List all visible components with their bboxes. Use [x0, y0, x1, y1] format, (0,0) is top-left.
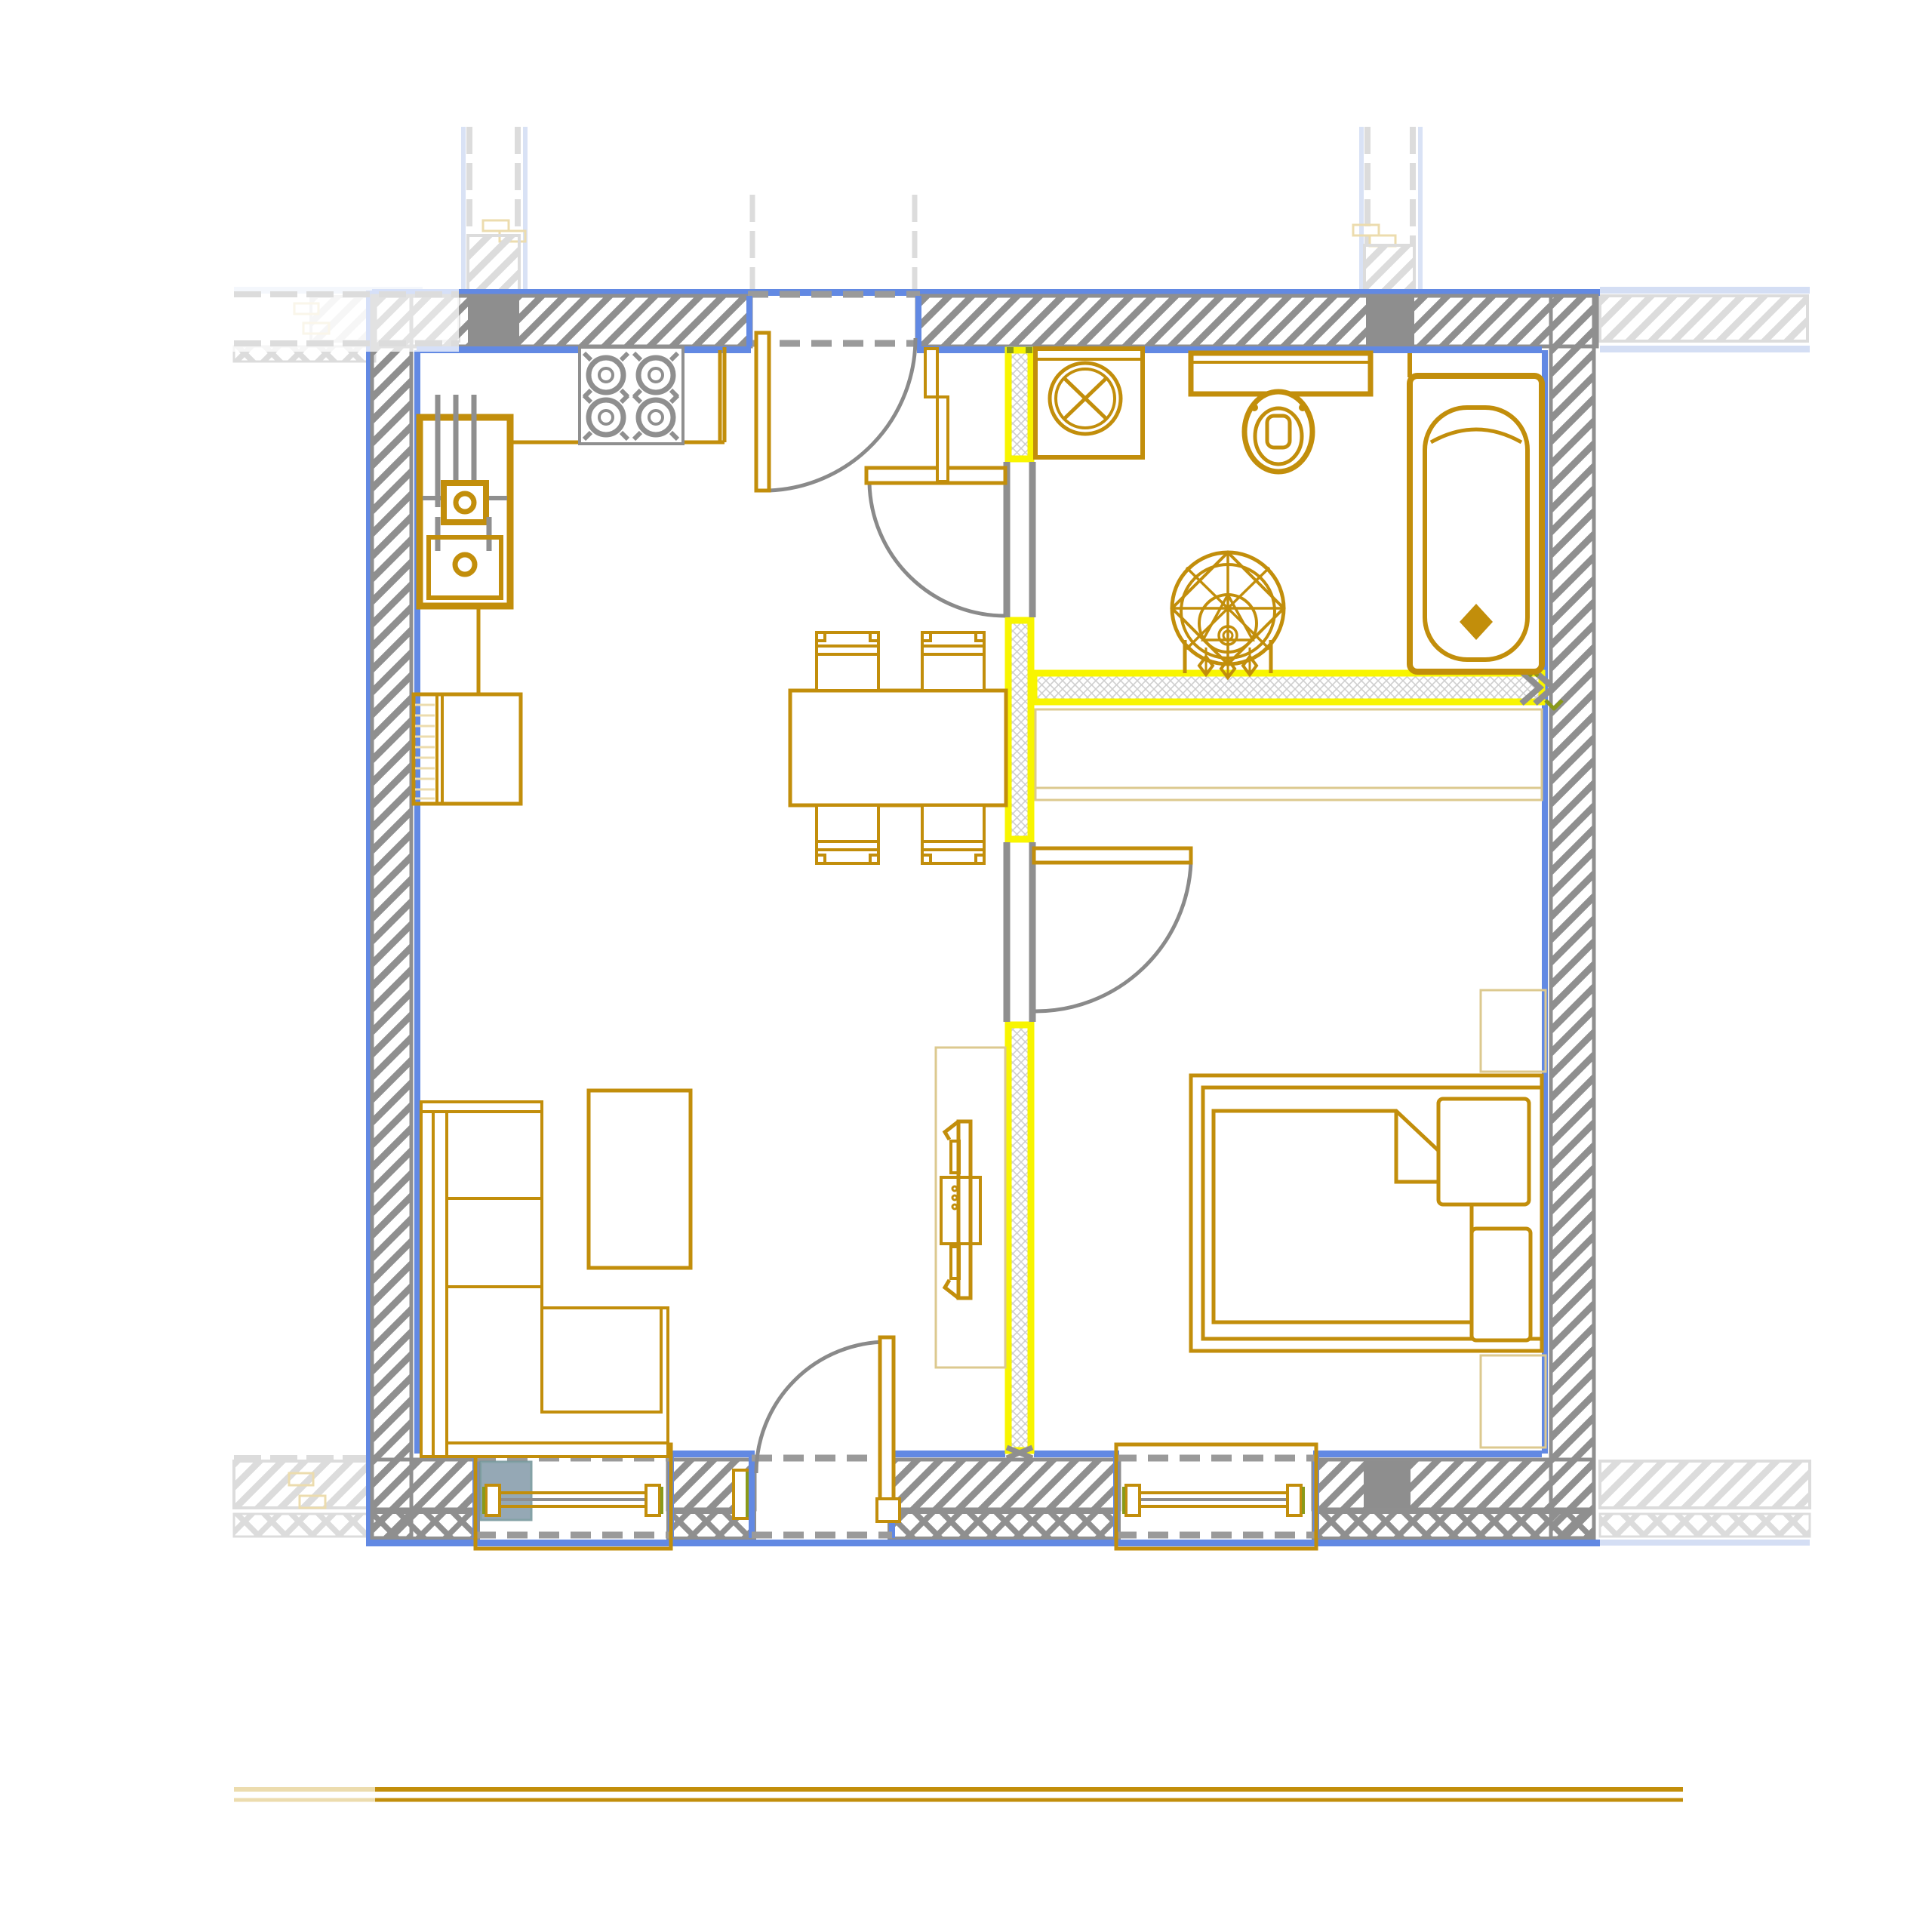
balcony-door — [734, 1337, 900, 1521]
top-wall — [917, 296, 1597, 346]
doors — [734, 333, 1191, 1521]
faded-wall-face — [1600, 1540, 1810, 1546]
partition-segment — [1008, 1025, 1031, 1451]
wall-stub-left — [461, 127, 528, 291]
annotation-lines — [234, 1789, 1683, 1800]
pedestal-washbasin — [1172, 552, 1284, 678]
tv-on-partition — [941, 1121, 980, 1298]
washing-machine — [1035, 349, 1143, 457]
coffee-table — [589, 1091, 691, 1268]
wall-face-line — [889, 1451, 1005, 1457]
cistern — [1191, 353, 1371, 394]
faded-insulation — [234, 1514, 372, 1537]
faded-insulation — [1600, 1514, 1810, 1537]
corner-sofa — [421, 1102, 668, 1457]
cad-drawing-canvas[interactable] — [0, 0, 1932, 1932]
kitchen-sink-unit — [420, 395, 510, 606]
wall-face-line — [668, 1451, 755, 1457]
door-leaf — [880, 1337, 894, 1500]
faded-wall-hatch — [1600, 1461, 1810, 1508]
door-leaf — [756, 333, 769, 491]
dining-chair — [817, 805, 878, 863]
dining-set — [790, 632, 1006, 863]
entry-side-trim — [925, 349, 937, 397]
concrete-column — [468, 296, 519, 346]
right-wall — [1551, 296, 1594, 1538]
bottom-wall — [889, 1460, 1119, 1509]
double-bed — [1191, 1075, 1542, 1351]
wall-stub-right — [1353, 127, 1423, 295]
dining-table — [790, 691, 1006, 805]
nightstand — [1481, 1355, 1546, 1447]
wall-face-line — [1034, 1451, 1119, 1457]
bathroom-area — [1035, 349, 1542, 678]
wardrobe — [1035, 709, 1542, 800]
door-leaf — [1034, 848, 1191, 863]
sofa-outline — [421, 1102, 668, 1457]
dining-chair — [817, 632, 878, 691]
cabinet-radiator — [414, 694, 521, 804]
faded-wall-face — [1600, 346, 1810, 352]
bottom-wall-insulation — [889, 1512, 1119, 1538]
concrete-column — [1364, 1461, 1411, 1508]
wall-face-line — [1313, 1451, 1542, 1457]
cabinet-body — [414, 694, 521, 804]
bottom-wall — [1313, 1460, 1594, 1509]
junction-tick — [1026, 347, 1032, 353]
floor-plan-page — [0, 0, 1932, 1932]
bathtub — [1410, 353, 1542, 672]
door-jamb-block — [734, 1470, 747, 1518]
jamb-face — [749, 1457, 755, 1538]
window-mullion — [646, 1485, 660, 1515]
dining-chair — [922, 632, 984, 691]
tv-unit — [936, 1048, 1005, 1367]
bottom-wall — [372, 1460, 478, 1509]
concrete-column — [1366, 296, 1414, 346]
partition-segment — [1008, 620, 1031, 839]
door-swing-arc — [869, 483, 1005, 616]
faucet-box — [444, 483, 486, 522]
partition-segment — [1008, 350, 1031, 459]
window-mullion — [1287, 1485, 1301, 1515]
bolt — [1299, 404, 1306, 411]
dining-chair — [922, 805, 984, 863]
faded-wall-hatch — [1600, 296, 1807, 341]
wall-face-line — [366, 1540, 1600, 1546]
door-jamb-block — [877, 1499, 900, 1521]
junction-tick — [1007, 347, 1014, 353]
toilet-with-cistern — [1191, 353, 1371, 472]
bathroom-door — [866, 468, 1005, 616]
jamb-face — [746, 296, 752, 346]
bottom-wall-insulation — [372, 1512, 478, 1538]
door-swing-arc — [1035, 863, 1191, 1011]
bottom-wall-insulation — [1313, 1512, 1594, 1538]
living-area — [421, 1048, 1005, 1457]
bathroom-partition-wall — [1034, 673, 1542, 702]
window-mullion — [486, 1485, 500, 1515]
nightstand — [1481, 990, 1546, 1072]
bedroom-door — [1034, 848, 1191, 1011]
faded-wall-face — [1600, 287, 1810, 294]
left-wall — [372, 296, 411, 1538]
bedroom-area — [1035, 709, 1546, 1447]
pillow — [1472, 1229, 1531, 1340]
entry-side-trim — [937, 397, 948, 481]
window-mullion — [1126, 1485, 1140, 1515]
pillow — [1438, 1099, 1529, 1204]
bolt — [1251, 404, 1258, 411]
door-swing-arc — [756, 1342, 888, 1473]
stove-4-burners — [580, 347, 683, 444]
